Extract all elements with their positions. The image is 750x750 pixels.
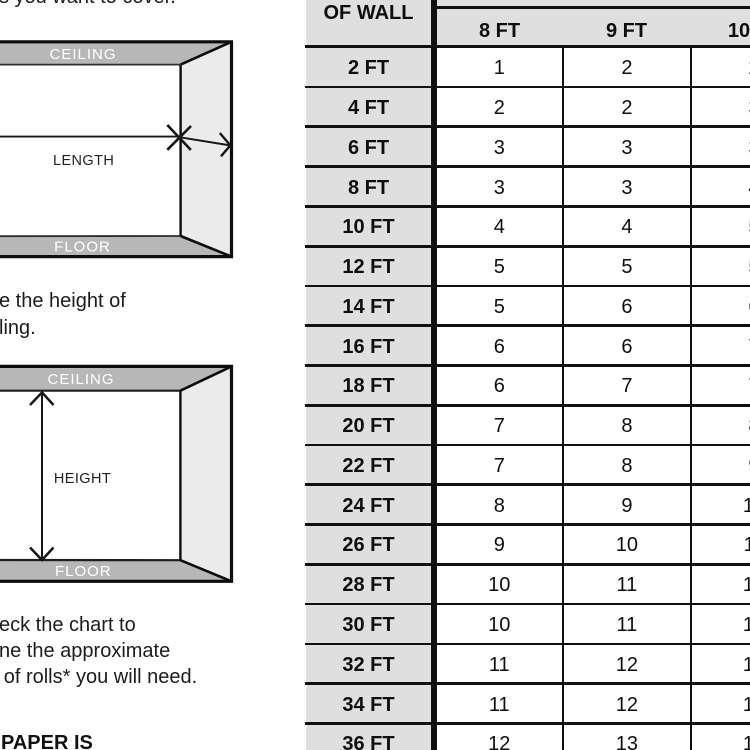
- svg-text:CEILING: CEILING: [47, 371, 114, 388]
- svg-text:FLOOR: FLOOR: [54, 239, 111, 256]
- svg-text:LENGTH: LENGTH: [53, 153, 114, 169]
- svg-text:HEIGHT: HEIGHT: [54, 471, 111, 487]
- svg-text:CEILING: CEILING: [49, 46, 116, 63]
- svg-text:FLOOR: FLOOR: [55, 563, 112, 580]
